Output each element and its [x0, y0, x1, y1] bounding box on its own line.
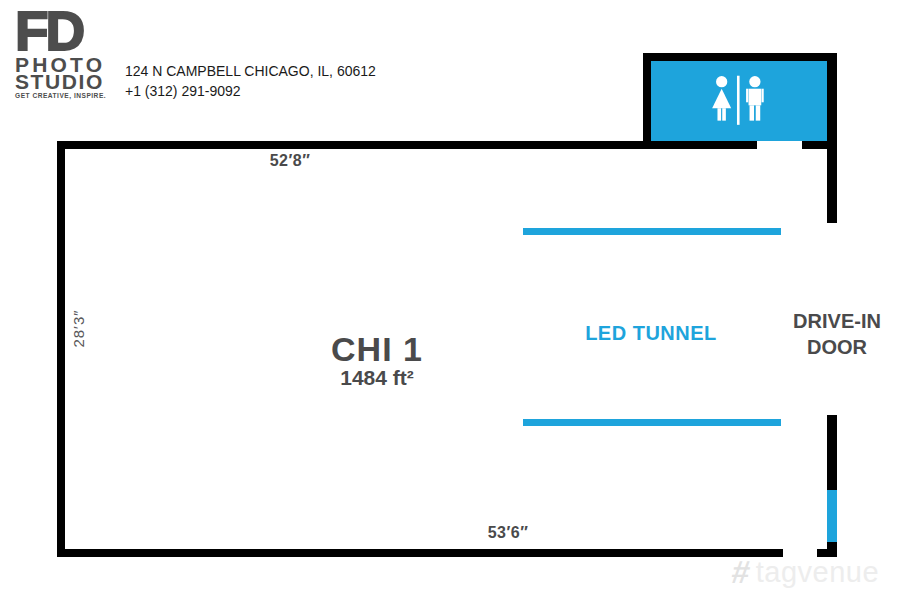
wall-top [57, 141, 757, 149]
drive-in-door-label: DRIVE-IN DOOR [780, 308, 894, 360]
phone-number: +1 (312) 291-9092 [125, 81, 376, 101]
wall-right-upper [827, 53, 837, 223]
watermark-text: tagvenue [756, 556, 879, 588]
restroom-wall-left [643, 53, 651, 149]
dimension-top: 52′8″ [230, 152, 350, 170]
room-label: CHI 1 1484 ft² [277, 332, 477, 390]
dimension-bottom: 53′6″ [448, 524, 568, 542]
right-wall-door-marker [827, 490, 837, 542]
restroom-sign [704, 75, 774, 127]
wall-right-lower [827, 415, 837, 490]
restroom-wall-top [643, 53, 837, 61]
logo-tagline: GET CREATIVE, INSPIRE. [15, 92, 106, 99]
led-tunnel-label: LED TUNNEL [546, 322, 756, 345]
drive-in-door-line2: DOOR [780, 334, 894, 360]
wall-top-right-segment [802, 141, 828, 149]
women-restroom-icon [712, 76, 731, 121]
floorplan-page: FD PHOTO STUDIO GET CREATIVE, INSPIRE. 1… [0, 0, 900, 600]
logo-studio-text: STUDIO [15, 73, 106, 90]
tagvenue-watermark: # tagvenue [732, 556, 879, 588]
address-line: 124 N CAMPBELL CHICAGO, IL, 60612 [125, 61, 376, 81]
restroom-divider [737, 76, 740, 125]
room-name: CHI 1 [277, 332, 477, 366]
dimension-left: 28′3″ [70, 294, 87, 364]
led-tunnel-bar-bottom [523, 419, 781, 426]
wall-left [57, 141, 65, 557]
men-restroom-icon [746, 76, 764, 121]
restroom-area [651, 61, 827, 141]
studio-address: 124 N CAMPBELL CHICAGO, IL, 60612 +1 (31… [125, 61, 376, 101]
led-tunnel-bar-top [523, 228, 781, 235]
logo-fd-text: FD [15, 6, 106, 56]
wall-bottom [57, 549, 783, 557]
fd-photo-studio-logo: FD PHOTO STUDIO GET CREATIVE, INSPIRE. [15, 6, 106, 99]
drive-in-door-line1: DRIVE-IN [780, 308, 894, 334]
room-area: 1484 ft² [277, 366, 477, 390]
hashtag-icon: # [730, 556, 752, 588]
